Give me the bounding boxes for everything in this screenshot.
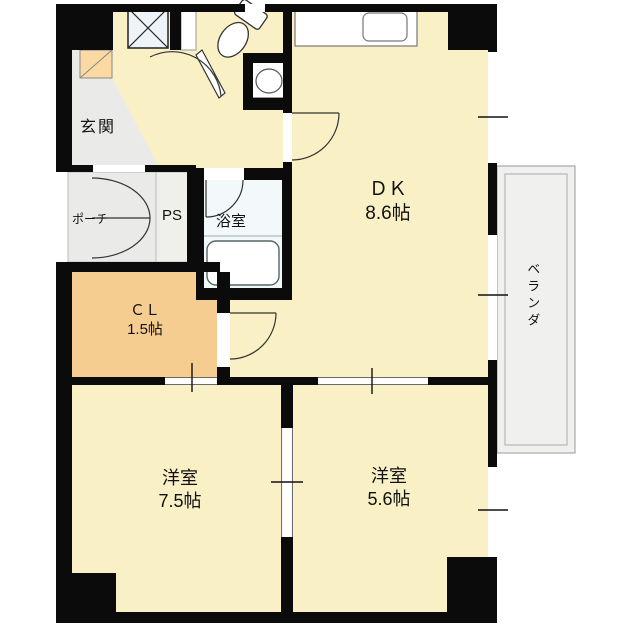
folding-door	[181, 9, 196, 50]
pipe-space-label: PS	[162, 207, 182, 226]
floorplan-canvas: 玄関 ポーチ PS 浴室 ＣＬ 1.5帖 ＤＫ 8.6帖 洋室 7.5帖 洋室 …	[0, 0, 640, 640]
genkan-label: 玄関	[80, 118, 116, 138]
closet-label: ＣＬ 1.5帖	[95, 302, 195, 340]
washbasin-icon	[252, 62, 288, 98]
porch-label: ポーチ	[72, 212, 108, 227]
western-room-large-label: 洋室 7.5帖	[130, 467, 230, 512]
shoe-cabinet-icon	[80, 50, 112, 78]
kitchen-counter-icon	[295, 8, 417, 46]
western-room-small-label: 洋室 5.6帖	[339, 465, 439, 510]
bathroom-label: 浴室	[216, 213, 246, 232]
kitchen-sink-icon	[363, 13, 407, 41]
outside-strip	[56, 172, 68, 262]
veranda-label: ベランダ	[524, 262, 540, 330]
washing-machine-space-icon	[128, 8, 168, 48]
dk-label: ＤＫ 8.6帖	[336, 178, 440, 226]
